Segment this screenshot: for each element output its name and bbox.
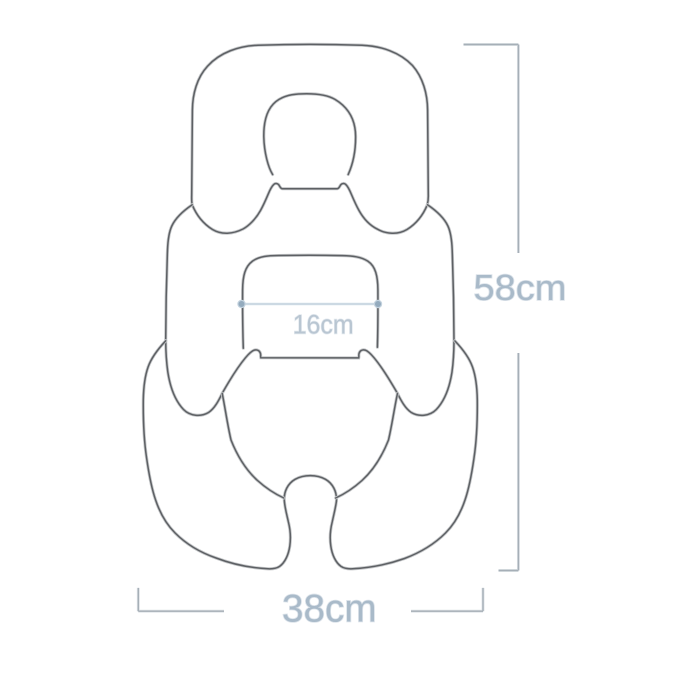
svg-text:58cm: 58cm (474, 267, 567, 308)
svg-text:16cm: 16cm (293, 310, 354, 340)
svg-text:38cm: 38cm (282, 587, 377, 630)
